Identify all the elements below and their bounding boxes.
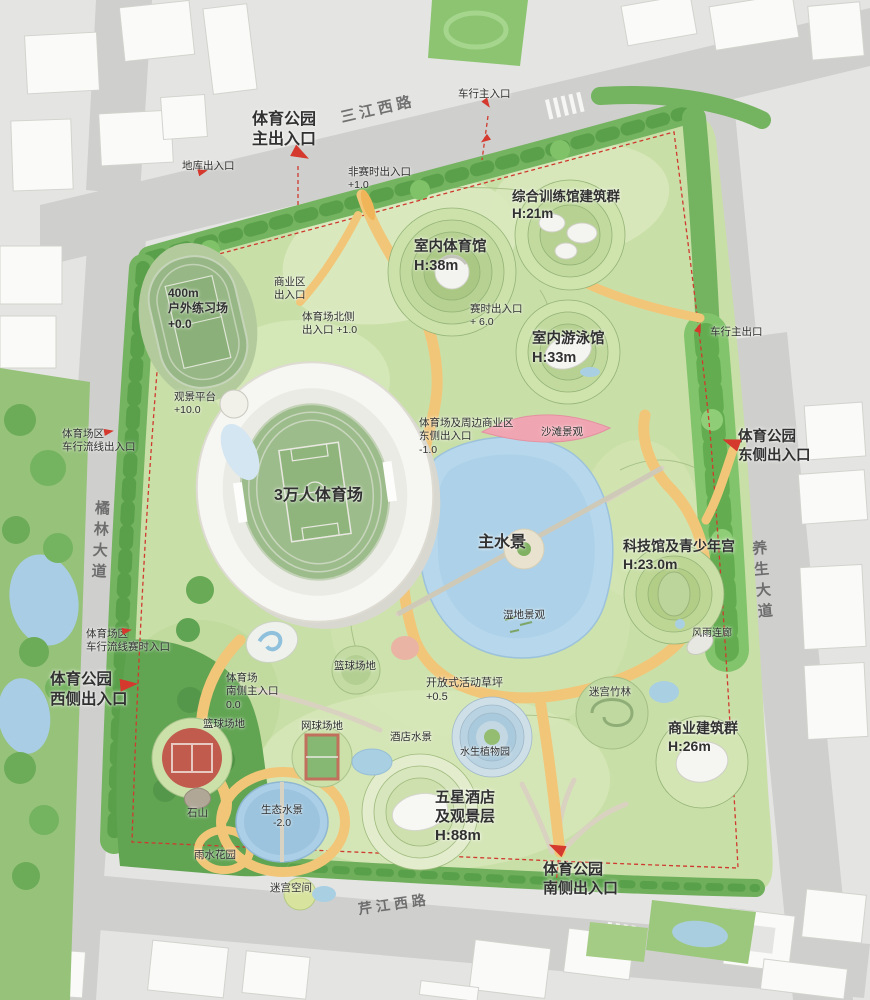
bamboo-maze-pond <box>649 681 679 703</box>
bamboo-maze-shape <box>576 677 648 749</box>
training-complex-mound <box>515 180 625 290</box>
commercial-buildings-mound <box>656 716 748 808</box>
site-plan: 体育公园 主出入口三江西路车行主入口地库出入口非赛时出入口 +1.0综合训练馆建… <box>0 0 870 1000</box>
indoor-pool-mound <box>516 300 620 404</box>
aquatic-plant-garden-shape <box>452 697 532 777</box>
tennis-court-shape <box>292 727 352 787</box>
site-plan-canvas <box>0 0 870 1000</box>
basketball-court-north-shape <box>332 646 380 694</box>
lawn-pink-circle <box>391 636 419 660</box>
viewing-platform-shape <box>220 390 248 418</box>
indoor-gym-mound <box>388 208 516 336</box>
eco-water-shape <box>236 782 328 862</box>
science-youth-hall-mound <box>624 544 724 644</box>
basketball-court-west-shape <box>152 718 232 798</box>
hotel-water-pond <box>352 749 392 775</box>
